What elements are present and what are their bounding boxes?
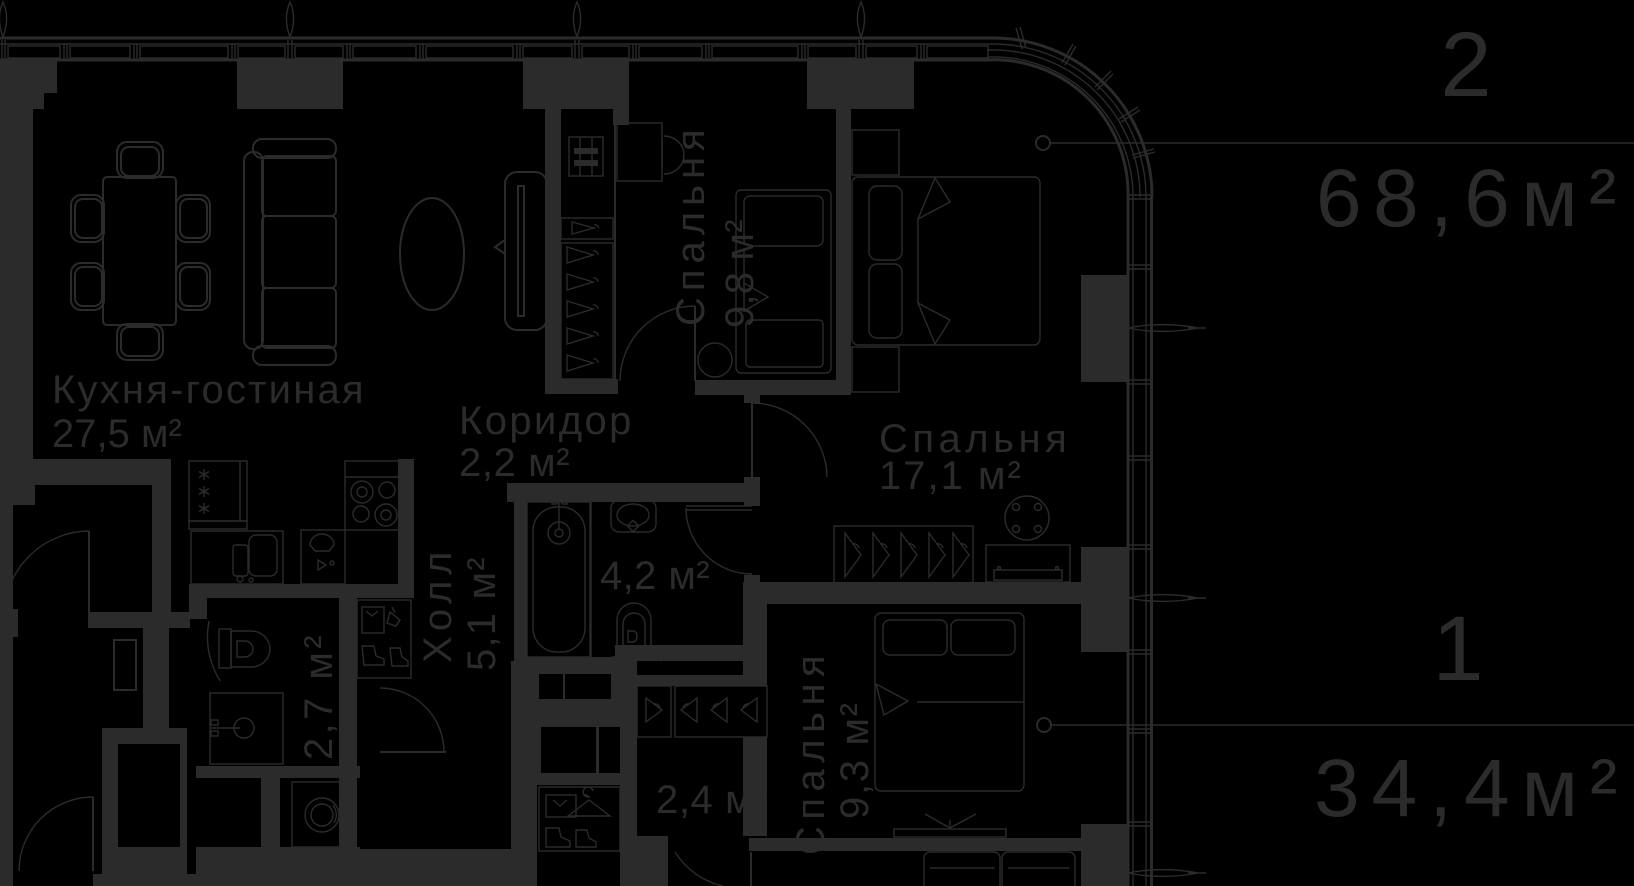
svg-text:68,6м²: 68,6м²	[1316, 153, 1628, 244]
svg-text:27,5 м²: 27,5 м²	[52, 412, 182, 456]
svg-text:2,7 м²: 2,7 м²	[297, 632, 341, 760]
svg-text:34,4м²: 34,4м²	[1314, 743, 1629, 834]
svg-text:1: 1	[1432, 598, 1483, 700]
svg-text:9,8 м²: 9,8 м²	[718, 219, 762, 328]
svg-text:9,3 м²: 9,3 м²	[833, 701, 877, 819]
svg-text:Холл: Холл	[416, 546, 460, 663]
svg-text:2,2 м²: 2,2 м²	[459, 441, 570, 485]
svg-text:4,2 м²: 4,2 м²	[600, 554, 710, 598]
svg-text:2: 2	[1440, 14, 1491, 116]
svg-text:2,4 м²: 2,4 м²	[656, 778, 767, 822]
svg-text:5,1 м²: 5,1 м²	[460, 556, 504, 671]
svg-text:Спальня: Спальня	[789, 649, 833, 855]
svg-text:Коридор: Коридор	[459, 399, 634, 443]
svg-text:Кухня-гостиная: Кухня-гостиная	[52, 368, 366, 412]
svg-text:Спальня: Спальня	[669, 123, 713, 326]
svg-text:17,1 м²: 17,1 м²	[879, 454, 1023, 498]
